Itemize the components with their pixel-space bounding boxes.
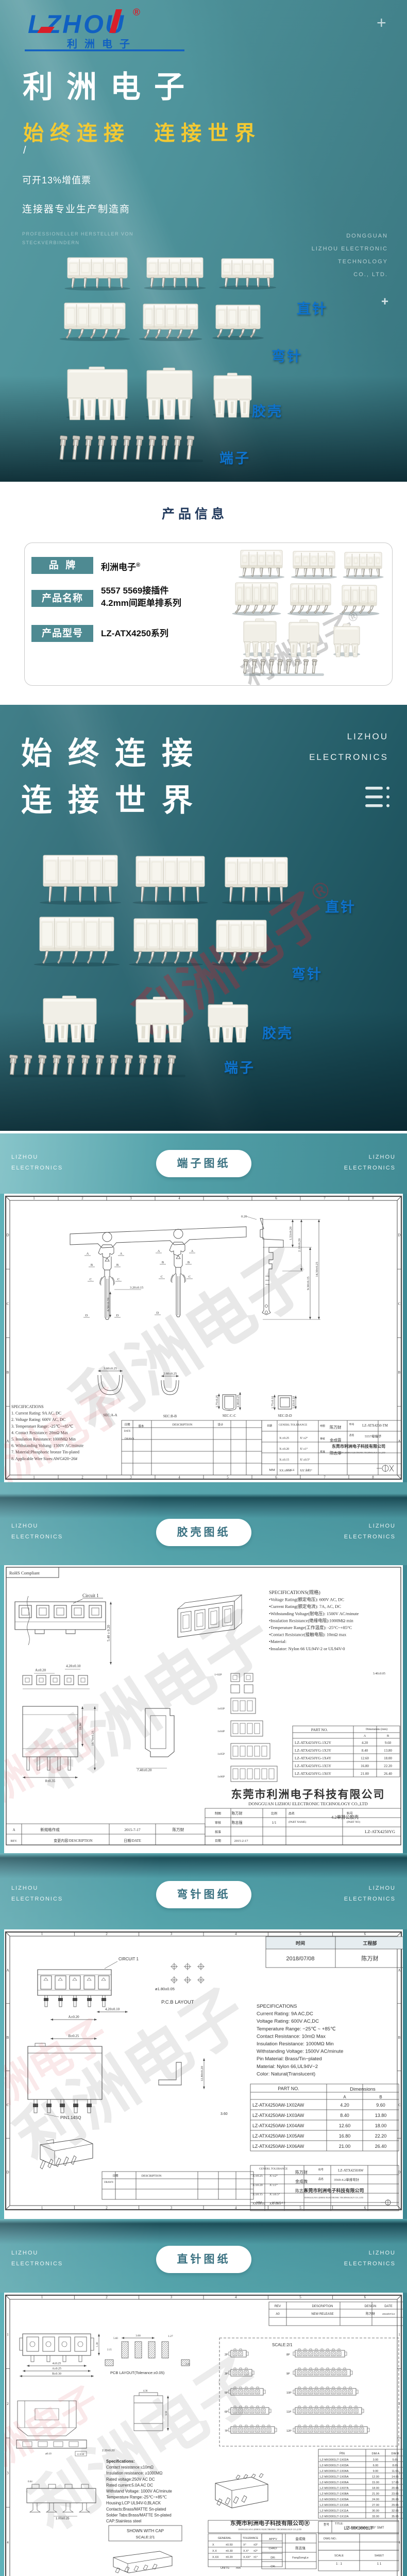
svg-text:型号: 型号	[324, 2522, 330, 2527]
svg-text:®: ®	[133, 7, 140, 18]
svg-text:6.00: 6.00	[373, 2464, 379, 2467]
svg-text:±2°: ±2°	[253, 2550, 258, 2553]
svg-text:23.65: 23.65	[392, 2493, 399, 2496]
svg-text:B: B	[379, 2095, 382, 2099]
svg-text:A: A	[364, 1734, 366, 1738]
svg-text:•Material:: •Material:	[269, 1639, 286, 1644]
svg-text:9.60: 9.60	[385, 1741, 392, 1745]
svg-text:7: 7	[324, 1196, 326, 1200]
svg-text:5.65: 5.65	[393, 2459, 398, 2462]
svg-text:金成微: 金成微	[295, 2536, 306, 2541]
svg-text:8.65: 8.65	[393, 2464, 398, 2467]
svg-text:日期: 日期	[267, 1425, 272, 1428]
svg-text:LZ-ATX4250AW-1X02AW: LZ-ATX4250AW-1X02AW	[252, 2103, 304, 2108]
svg-text:9P: 9P	[286, 2372, 290, 2376]
svg-text:B: B	[162, 1261, 164, 1264]
svg-text:LZ-ATX4250AW-1X05AW: LZ-ATX4250AW-1X05AW	[252, 2133, 304, 2139]
svg-text:UNITS:: UNITS:	[221, 2567, 230, 2570]
svg-text:X':±2°: X':±2°	[300, 1436, 308, 1440]
svg-text:DESIGN: DESIGN	[364, 2305, 376, 2308]
svg-text:6: 6	[364, 2295, 366, 2299]
svg-text:LZ-ATX4250AW: LZ-ATX4250AW	[338, 2168, 364, 2173]
svg-text:X':±0.5°: X':±0.5°	[300, 1458, 310, 1462]
svg-text:A: A	[12, 1828, 15, 1832]
svg-text:核准: 核准	[215, 1830, 221, 1834]
svg-text:±0.30: ±0.30	[226, 2550, 233, 2553]
svg-text:陈万财: 陈万财	[232, 1811, 243, 1816]
svg-text:B: B	[91, 1263, 93, 1267]
svg-text:3: 3	[130, 1196, 132, 1200]
svg-text:X: X	[212, 2544, 214, 2547]
svg-text:Temperature Range: −25℃ ~ +85℃: Temperature Range: −25℃ ~ +85℃	[257, 2026, 336, 2032]
svg-text:金成霞: 金成霞	[330, 1437, 342, 1443]
svg-text:LZ-MX3001LT-1X04A: LZ-MX3001LT-1X04A	[320, 2470, 349, 2473]
svg-text:A±0.25: A±0.25	[52, 2367, 61, 2370]
svg-text:2: 2	[106, 1932, 108, 1936]
svg-text:A: A	[398, 1968, 400, 1972]
svg-text:Dimensions: Dimensions	[350, 2087, 376, 2092]
svg-text:SHOWN WITH CAP: SHOWN WITH CAP	[127, 2529, 164, 2533]
svg-text:12.80±0.20: 12.80±0.20	[200, 2066, 204, 2081]
svg-text:Current Rating: 9A AC,DC: Current Rating: 9A AC,DC	[257, 2011, 313, 2017]
svg-text:C: C	[398, 1302, 401, 1306]
svg-text:6: 6	[364, 1932, 366, 1936]
svg-text:29.65: 29.65	[392, 2504, 399, 2507]
svg-text:Specifications:: Specifications:	[106, 2459, 134, 2464]
svg-text:3.40±0.05: 3.40±0.05	[373, 1672, 385, 1675]
svg-text:3.20±0.15: 3.20±0.15	[130, 1286, 143, 1290]
svg-text:P.C.B LAYOUT: P.C.B LAYOUT	[161, 1999, 194, 2005]
svg-text:1.30: 1.30	[96, 2342, 99, 2347]
svg-text:•Current Rating(额定电流): 7A, AC,: •Current Rating(额定电流): 7A, AC, DC	[269, 1604, 341, 1609]
svg-text:陈万财: 陈万财	[330, 1425, 342, 1430]
svg-text:LZ-MX3001LT-1X08A: LZ-MX3001LT-1X08A	[320, 2493, 349, 2496]
svg-text:8: 8	[372, 1476, 374, 1480]
svg-text:绘图: 绘图	[320, 1424, 325, 1428]
svg-text:X':±0.5°: X':±0.5°	[269, 2193, 280, 2196]
svg-text:1 : 1: 1 : 1	[336, 2563, 342, 2566]
svg-text:12.60: 12.60	[339, 2123, 351, 2128]
svg-text:Withstanding Voltage: 1500V AC: Withstanding Voltage: 1500V AC/minute	[257, 2049, 343, 2055]
svg-text:6: 6	[275, 1196, 277, 1200]
svg-text:时间: 时间	[296, 1940, 305, 1946]
svg-text:D: D	[6, 1233, 9, 1238]
svg-text:NEW RELEASE: NEW RELEASE	[311, 2313, 333, 2316]
svg-text:B: B	[398, 2036, 401, 2040]
svg-text:CAP:Stainless steel: CAP:Stainless steel	[106, 2519, 142, 2523]
svg-text:陈万财: 陈万财	[366, 2312, 375, 2316]
svg-text:日期: 日期	[112, 2174, 118, 2178]
svg-text:C: C	[161, 1275, 163, 1279]
svg-text:LZ-MX3001LT-1X09A: LZ-MX3001LT-1X09A	[320, 2498, 349, 2501]
svg-text:SHEET: SHEET	[375, 2554, 384, 2557]
svg-text:陈万财: 陈万财	[295, 2170, 308, 2175]
svg-text:20.65: 20.65	[392, 2487, 399, 2490]
svg-text:17.65: 17.65	[392, 2481, 399, 2484]
svg-text:LZ-MX3001LT-1X05A: LZ-MX3001LT-1X05A	[320, 2476, 349, 2479]
svg-text:21.00: 21.00	[339, 2144, 351, 2149]
svg-text:1: 1	[7, 2332, 9, 2336]
svg-text:LZ-MX3001LT-1X11A: LZ-MX3001LT-1X11A	[320, 2510, 348, 2513]
svg-text:LZ-MX3001LT-1X10A: LZ-MX3001LT-1X10A	[320, 2504, 349, 2507]
svg-text:12.60: 12.60	[361, 1756, 369, 1760]
svg-text:35.65: 35.65	[392, 2515, 399, 2518]
svg-text:Contacts:Brass/MATTE Sn-plate: Contacts:Brass/MATTE Sn-plated	[106, 2507, 166, 2512]
svg-text:3.43: 3.43	[185, 2363, 190, 2366]
svg-text:A0: A0	[276, 2313, 280, 2316]
svg-text:DRAWN: DRAWN	[104, 2181, 113, 2184]
svg-text:SCALE 1:1: SCALE 1:1	[272, 2201, 285, 2205]
svg-text:8: 8	[372, 1196, 374, 1200]
svg-text:3: 3	[171, 1932, 173, 1936]
svg-text:DATE: DATE	[384, 2305, 393, 2308]
svg-text:±1°: ±1°	[253, 2556, 258, 2559]
svg-text:1.00±0.25: 1.00±0.25	[56, 2517, 70, 2520]
svg-text:Rated current:5.0A AC DC: Rated current:5.0A AC DC	[106, 2483, 153, 2487]
svg-text:X':±1°: X':±1°	[300, 1447, 308, 1451]
svg-text:Color: Natural(Translucent): Color: Natural(Translucent)	[257, 2071, 315, 2077]
svg-text:LZ-ATX4250AW-1X06AW: LZ-ATX4250AW-1X06AW	[252, 2144, 304, 2149]
svg-text:3: 3	[130, 1476, 132, 1480]
svg-text:DIM B: DIM B	[391, 2452, 399, 2455]
svg-text:Pin Material: Brass/Tin−plated: Pin Material: Brass/Tin−plated	[257, 2056, 322, 2062]
svg-text:DESCRIPTION: DESCRIPTION	[312, 2305, 333, 2308]
svg-text:GENERAL: GENERAL	[218, 2537, 231, 2540]
svg-text:LZ-MX3001LT-1X06A: LZ-MX3001LT-1X06A	[320, 2481, 349, 2484]
svg-text:品名: 品名	[289, 1811, 295, 1816]
svg-text:1.75±0.25: 1.75±0.25	[216, 1395, 219, 1408]
svg-text:5557母端子: 5557母端子	[365, 1434, 382, 1438]
svg-text:PIN: PIN	[340, 2452, 345, 2455]
svg-text:2015-7-17: 2015-7-17	[124, 1827, 140, 1832]
svg-text:2: 2	[7, 2402, 9, 2406]
svg-text:DATE: DATE	[124, 1430, 131, 1433]
svg-text:1: 1	[41, 2295, 43, 2299]
svg-text:5.60: 5.60	[113, 2337, 118, 2340]
svg-text:1.53±0.20: 1.53±0.20	[289, 1227, 293, 1240]
svg-text:3.60: 3.60	[221, 2112, 228, 2116]
svg-text:X.X: X.X	[212, 2550, 217, 2553]
svg-text:2P: 2P	[225, 2353, 228, 2357]
svg-text:3: 3	[171, 2206, 173, 2210]
svg-text:TITLE:: TITLE:	[335, 2522, 344, 2526]
svg-text:东莞市利洲电子科技有限公司: 东莞市利洲电子科技有限公司	[303, 2188, 364, 2193]
svg-text:7P: 7P	[225, 2430, 228, 2433]
svg-text:•Voltage Rating(额定电压): 600V AC: •Voltage Rating(额定电压): 600V AC, DC	[269, 1597, 344, 1602]
svg-text:Contact resistance:≤10mΩ: Contact resistance:≤10mΩ	[106, 2465, 154, 2470]
svg-text:料号: 料号	[349, 1422, 354, 1426]
svg-text:27.00: 27.00	[372, 2504, 379, 2507]
svg-text:B: B	[116, 1263, 119, 1267]
svg-text:LZ-MX3001LT: LZ-MX3001LT	[344, 2526, 374, 2531]
svg-text:0.20: 0.20	[241, 1215, 247, 1218]
svg-text:LZ-ATX4250YG-1X4Y: LZ-ATX4250YG-1X4Y	[295, 1756, 332, 1760]
svg-text:SEC:C-C: SEC:C-C	[223, 1414, 236, 1418]
svg-text:5: 5	[299, 1932, 301, 1936]
svg-text:LZ-ATX4250YG-1X3Y: LZ-ATX4250YG-1X3Y	[295, 1748, 332, 1753]
svg-text:2: 2	[81, 1476, 83, 1480]
svg-text:SPECIFICATIONS: SPECIFICATIONS	[11, 1404, 44, 1409]
svg-text:Insulation Resistance: 1000MΩ: Insulation Resistance: 1000MΩ Min	[257, 2041, 334, 2047]
svg-text:料号: 料号	[318, 2168, 324, 2172]
svg-text:利洲电子: 利洲电子	[67, 38, 137, 50]
svg-text:DIM A: DIM A	[372, 2452, 380, 2455]
svg-text:18.00: 18.00	[375, 2123, 387, 2128]
svg-text:18.00: 18.00	[372, 2487, 379, 2490]
svg-text:A: A	[6, 1968, 9, 1972]
svg-text:5: 5	[299, 2295, 301, 2299]
svg-text:3569-4.2单排弯针: 3569-4.2单排弯针	[334, 2177, 360, 2182]
svg-text:mm: mm	[236, 2567, 241, 2570]
svg-text:DONGGUAN LIZHOU ELECTRONIC TEC: DONGGUAN LIZHOU ELECTRONIC TECHNOLOGY CO…	[304, 2196, 363, 2199]
svg-text:26.40: 26.40	[375, 2144, 387, 2149]
svg-text:制图: 制图	[215, 1811, 221, 1816]
svg-text:ø1.80±0.05: ø1.80±0.05	[155, 1987, 175, 1991]
svg-text:18.00: 18.00	[384, 1756, 392, 1760]
svg-text:X.X°: X.X°	[243, 2550, 249, 2553]
svg-text:A: A	[343, 2095, 346, 2099]
svg-text:日期/DATE: 日期/DATE	[124, 1839, 141, 1843]
svg-text:东莞市利洲电子科技有限公司: 东莞市利洲电子科技有限公司	[332, 1444, 385, 1449]
svg-text:RoHS Compliant: RoHS Compliant	[9, 1570, 40, 1575]
svg-text:D: D	[398, 1233, 400, 1238]
svg-text:9.90: 9.90	[165, 2411, 168, 2415]
svg-text:5: 5	[227, 1196, 229, 1200]
svg-text:TOLERANCE: TOLERANCE	[243, 2537, 259, 2540]
svg-text:审核: 审核	[320, 1437, 325, 1440]
svg-text:Circuit 1: Circuit 1	[82, 1593, 99, 1598]
svg-text:X:±0.20: X:±0.20	[252, 2184, 263, 2187]
svg-text:1.75±0.10: 1.75±0.10	[272, 1396, 275, 1409]
svg-text:PCB LAYOUT(Tolerance:±0.05): PCB LAYOUT(Tolerance:±0.05)	[110, 2370, 165, 2375]
svg-text:Material: Nylon 66,UL94V−2: Material: Nylon 66,UL94V−2	[257, 2064, 318, 2070]
svg-text:MM: MM	[257, 2201, 262, 2205]
svg-text:Housing:LCP UL94V-0,BLACK: Housing:LCP UL94V-0,BLACK	[106, 2501, 161, 2505]
svg-text:SPECIFICATIONS(规格): SPECIFICATIONS(规格)	[269, 1589, 320, 1596]
svg-text:A: A	[120, 1252, 123, 1256]
svg-text:14.30±0.25: 14.30±0.25	[315, 1262, 319, 1277]
svg-text:•Withstanding Voltage(耐电压): 15: •Withstanding Voltage(耐电压): 1500V AC/min…	[269, 1611, 359, 1616]
svg-text:变更内容/DESCRIPTION: 变更内容/DESCRIPTION	[54, 1838, 92, 1843]
svg-text:1x03P: 1x03P	[217, 1707, 225, 1710]
svg-text:X':±1°: X':±1°	[269, 2183, 278, 2187]
svg-text:B: B	[7, 1370, 9, 1375]
svg-text:21.00: 21.00	[372, 2493, 379, 2496]
svg-text:LZ-ATX4250YG-1X5Y: LZ-ATX4250YG-1X5Y	[295, 1764, 332, 1768]
svg-text:C: C	[117, 1278, 120, 1281]
svg-text:12.00: 12.00	[372, 2476, 379, 2479]
svg-text:2019/07/13: 2019/07/13	[382, 2313, 395, 2316]
svg-text:版本: 版本	[138, 1424, 144, 1428]
svg-text:GENERL TOLERANCE: GENERL TOLERANCE	[279, 1423, 308, 1427]
svg-text:MM: MM	[269, 1468, 275, 1472]
svg-text:Temperature Range:-25℃~+85℃: Temperature Range:-25℃~+85℃	[106, 2495, 167, 2500]
svg-text:8.40: 8.40	[362, 1749, 368, 1753]
svg-text:CIRCUIT 1: CIRCUIT 1	[118, 1957, 139, 1961]
svg-text:0.64: 0.64	[28, 2481, 32, 2483]
svg-text:2: 2	[81, 1196, 83, 1200]
svg-text:⌀0.10: ⌀0.10	[45, 2453, 52, 2455]
svg-text:14.65: 14.65	[392, 2476, 399, 2479]
svg-text:B: B	[7, 2036, 9, 2040]
svg-text:DRAWN: DRAWN	[125, 1438, 134, 1440]
svg-text:CHKD:: CHKD:	[268, 2547, 278, 2550]
svg-text:SEC:B-B: SEC:B-B	[163, 1414, 177, 1418]
svg-text:LZ-MX3001LT-1X07A: LZ-MX3001LT-1X07A	[320, 2487, 349, 2490]
svg-text:5: 5	[227, 1476, 229, 1480]
svg-text:2.15: 2.15	[107, 2349, 112, 2351]
svg-text:1: 1	[33, 1196, 35, 1200]
svg-text:(PART NAME): (PART NAME)	[289, 1820, 307, 1824]
svg-text:9.00: 9.00	[373, 2470, 379, 2473]
svg-text:B: B	[387, 1734, 389, 1738]
svg-text:4: 4	[235, 1932, 237, 1936]
svg-text:PART NO.: PART NO.	[278, 2086, 299, 2091]
svg-text:15.00: 15.00	[372, 2481, 379, 2484]
svg-text:2: 2	[106, 2295, 108, 2299]
svg-text:2.60±0.25: 2.60±0.25	[163, 1372, 177, 1376]
svg-text:Solder Tabs:Brass/MATTE Sn-p: Solder Tabs:Brass/MATTE Sn-plated	[106, 2513, 172, 2517]
svg-text:DWG NO.:: DWG NO.:	[324, 2537, 337, 2540]
svg-text:3.00: 3.00	[135, 2334, 141, 2337]
svg-text:LZ-ATX4250YG-1X2Y: LZ-ATX4250YG-1X2Y	[295, 1740, 332, 1745]
svg-text:C: C	[398, 2103, 401, 2107]
svg-text:±3°: ±3°	[253, 2544, 258, 2547]
svg-text:LZ-ATX4250AW-1X04AW: LZ-ATX4250AW-1X04AW	[252, 2123, 304, 2128]
svg-text:11.65: 11.65	[392, 2470, 398, 2473]
svg-text:B: B	[398, 1370, 401, 1375]
svg-text:陈志强: 陈志强	[295, 2546, 306, 2550]
svg-text:A±0.20: A±0.20	[68, 2015, 79, 2019]
svg-text:新规格作成: 新规格作成	[40, 1827, 60, 1832]
svg-text:26.40: 26.40	[384, 1772, 392, 1776]
svg-text:4.2单排公胶壳: 4.2单排公胶壳	[331, 1815, 359, 1820]
svg-text:APP'V: APP'V	[269, 2538, 277, 2541]
svg-text:金成微: 金成微	[295, 2179, 308, 2184]
svg-text:2.10±0.20: 2.10±0.20	[298, 1239, 301, 1252]
svg-text:LZ-ATX4250AW-1X03AW: LZ-ATX4250AW-1X03AW	[252, 2113, 304, 2118]
svg-text:6P: 6P	[225, 2411, 228, 2414]
svg-text:B: B	[188, 1261, 190, 1264]
svg-text:DONGGUAN LIZHOU ELECTRONIC TEC: DONGGUAN LIZHOU ELECTRONIC TECHNOLOGY CO…	[248, 1801, 368, 1806]
svg-text:X.XX: X.XX	[212, 2556, 219, 2559]
svg-text:1.63±0.10: 1.63±0.10	[293, 1396, 296, 1409]
svg-text:陈万财: 陈万财	[173, 1827, 184, 1832]
svg-text:X:±0.15: X:±0.15	[252, 2193, 263, 2196]
svg-text:±0.50: ±0.50	[226, 2544, 233, 2547]
svg-text:X:±0.15: X:±0.15	[279, 1459, 289, 1462]
svg-text:6: 6	[364, 2206, 366, 2210]
svg-text:A: A	[158, 1249, 160, 1253]
svg-text:SEC:D-D: SEC:D-D	[278, 1414, 292, 1418]
svg-text:2.00±0.25: 2.00±0.25	[237, 1395, 240, 1407]
svg-text:DONGGUAN LIZHOU ELECTRONIC TEC: DONGGUAN LIZHOU ELECTRONIC TECHNOLOGY CO…	[239, 2528, 302, 2531]
svg-text:Dimensions (mm): Dimensions (mm)	[366, 1727, 387, 1731]
svg-text:PIN1.14SQ: PIN1.14SQ	[60, 2115, 81, 2120]
svg-text:CR:: CR:	[270, 2565, 276, 2568]
svg-text:2: 2	[106, 2206, 108, 2210]
svg-text:LZ-ATX4250YG-1X6Y: LZ-ATX4250YG-1X6Y	[295, 1771, 332, 1776]
svg-text:1 1: 1 1	[377, 2563, 382, 2566]
svg-text:•Contact Resistance(接触电阻): 10m: •Contact Resistance(接触电阻): 10mΩ max	[269, 1632, 347, 1637]
svg-text:LZ-ATX4250-TM: LZ-ATX4250-TM	[362, 1424, 388, 1428]
svg-text:2018/07/08: 2018/07/08	[286, 1956, 314, 1962]
svg-text:21.00: 21.00	[361, 1772, 369, 1776]
svg-text:4.20±0.10: 4.20±0.10	[66, 1664, 81, 1668]
svg-text:9.60: 9.60	[376, 2103, 385, 2108]
svg-text:Rated voltage:250V AC DC: Rated voltage:250V AC DC	[106, 2477, 155, 2482]
svg-text:(PART NO): (PART NO)	[347, 1820, 360, 1824]
svg-text:X':±2°: X':±2°	[269, 2174, 278, 2178]
svg-text:•Insulation Resistance(绝缘电阻):1: •Insulation Resistance(绝缘电阻):1000MΩ min	[269, 1618, 353, 1623]
svg-text:1×02P: 1×02P	[214, 1673, 222, 1676]
svg-text:设计: 设计	[217, 1422, 224, 1427]
svg-text:Withstand Voltage: 1000V AC: Withstand Voltage: 1000V AC/minute	[106, 2489, 172, 2494]
svg-text:16.80: 16.80	[361, 1764, 369, 1768]
svg-text:SCALE: SCALE	[334, 2554, 344, 2557]
svg-text:品名: 品名	[318, 2177, 324, 2181]
svg-text:•Temperature Range(工作温度): -25°: •Temperature Range(工作温度): -25°C~+85°C	[269, 1625, 352, 1630]
svg-text:LZ-ATX4250YG: LZ-ATX4250YG	[365, 1829, 395, 1834]
svg-text:6.50±0.20: 6.50±0.20	[107, 1298, 110, 1311]
svg-text:5.40 ± 0.20: 5.40 ± 0.20	[107, 1625, 111, 1641]
svg-text:4: 4	[178, 1196, 180, 1200]
svg-text:DESCRIPTION: DESCRIPTION	[141, 2175, 162, 2178]
svg-text:X°: X°	[243, 2544, 246, 2547]
svg-text:料号: 料号	[347, 1811, 353, 1816]
svg-text:C 0.10: C 0.10	[77, 2453, 84, 2455]
svg-text:DR:: DR:	[270, 2556, 276, 2560]
svg-text:X:±0.25: X:±0.25	[279, 1437, 289, 1440]
svg-text:X:±0.20: X:±0.20	[279, 1448, 289, 1451]
svg-text:LZ-MX3001LT-1X12A: LZ-MX3001LT-1X12A	[320, 2515, 349, 2518]
svg-text:1: 1	[41, 1932, 43, 1936]
svg-text:10P: 10P	[286, 2392, 292, 2395]
svg-text:GENERL TOLERANCE: GENERL TOLERANCE	[259, 2167, 288, 2171]
svg-text:7: 7	[324, 1476, 326, 1480]
svg-text:6: 6	[275, 1476, 277, 1480]
svg-text:32.65: 32.65	[392, 2510, 399, 2513]
svg-text:B±0.30: B±0.30	[52, 2372, 61, 2376]
svg-text:2015-2-17: 2015-2-17	[234, 1839, 248, 1843]
svg-text:4.20: 4.20	[340, 2103, 349, 2108]
svg-text:日期: 日期	[215, 1839, 221, 1843]
svg-text:X:±0.25: X:±0.25	[252, 2175, 263, 2178]
svg-text:审核: 审核	[215, 1821, 221, 1825]
svg-text:C: C	[189, 1275, 191, 1279]
svg-text:2.20±0.20: 2.20±0.20	[102, 2449, 114, 2452]
svg-text:Insulation resistance: ≥1000M: Insulation resistance: ≥1000MΩ	[106, 2471, 163, 2476]
svg-text:PART NO.: PART NO.	[311, 1727, 328, 1732]
svg-text:SCALE:2/1: SCALE:2/1	[135, 2535, 155, 2539]
svg-text:5: 5	[299, 2206, 301, 2210]
svg-text:SPECIFICATIONS: SPECIFICATIONS	[257, 2004, 297, 2009]
svg-text:3.60±0.25: 3.60±0.25	[104, 1367, 117, 1370]
svg-text:D: D	[86, 1314, 88, 1317]
svg-text:26.65: 26.65	[392, 2498, 399, 2501]
svg-text:1/1: 1/1	[272, 1821, 277, 1825]
svg-text:4: 4	[235, 2206, 237, 2210]
svg-text:工程部: 工程部	[363, 1940, 377, 1946]
svg-text:•Insulator: Nylon 66 UL94V-2: •Insulator: Nylon 66 UL94V-2 or UL94V-0	[269, 1646, 345, 1651]
svg-text:4±0.25: 4±0.25	[53, 2362, 61, 2365]
svg-text:±0.20: ±0.20	[226, 2556, 233, 2559]
svg-text:24.00: 24.00	[372, 2498, 379, 2501]
svg-text:A: A	[398, 1439, 400, 1443]
svg-text:批准: 批准	[320, 1450, 325, 1453]
svg-text:D: D	[157, 1311, 159, 1315]
svg-text:8.40: 8.40	[340, 2113, 349, 2118]
